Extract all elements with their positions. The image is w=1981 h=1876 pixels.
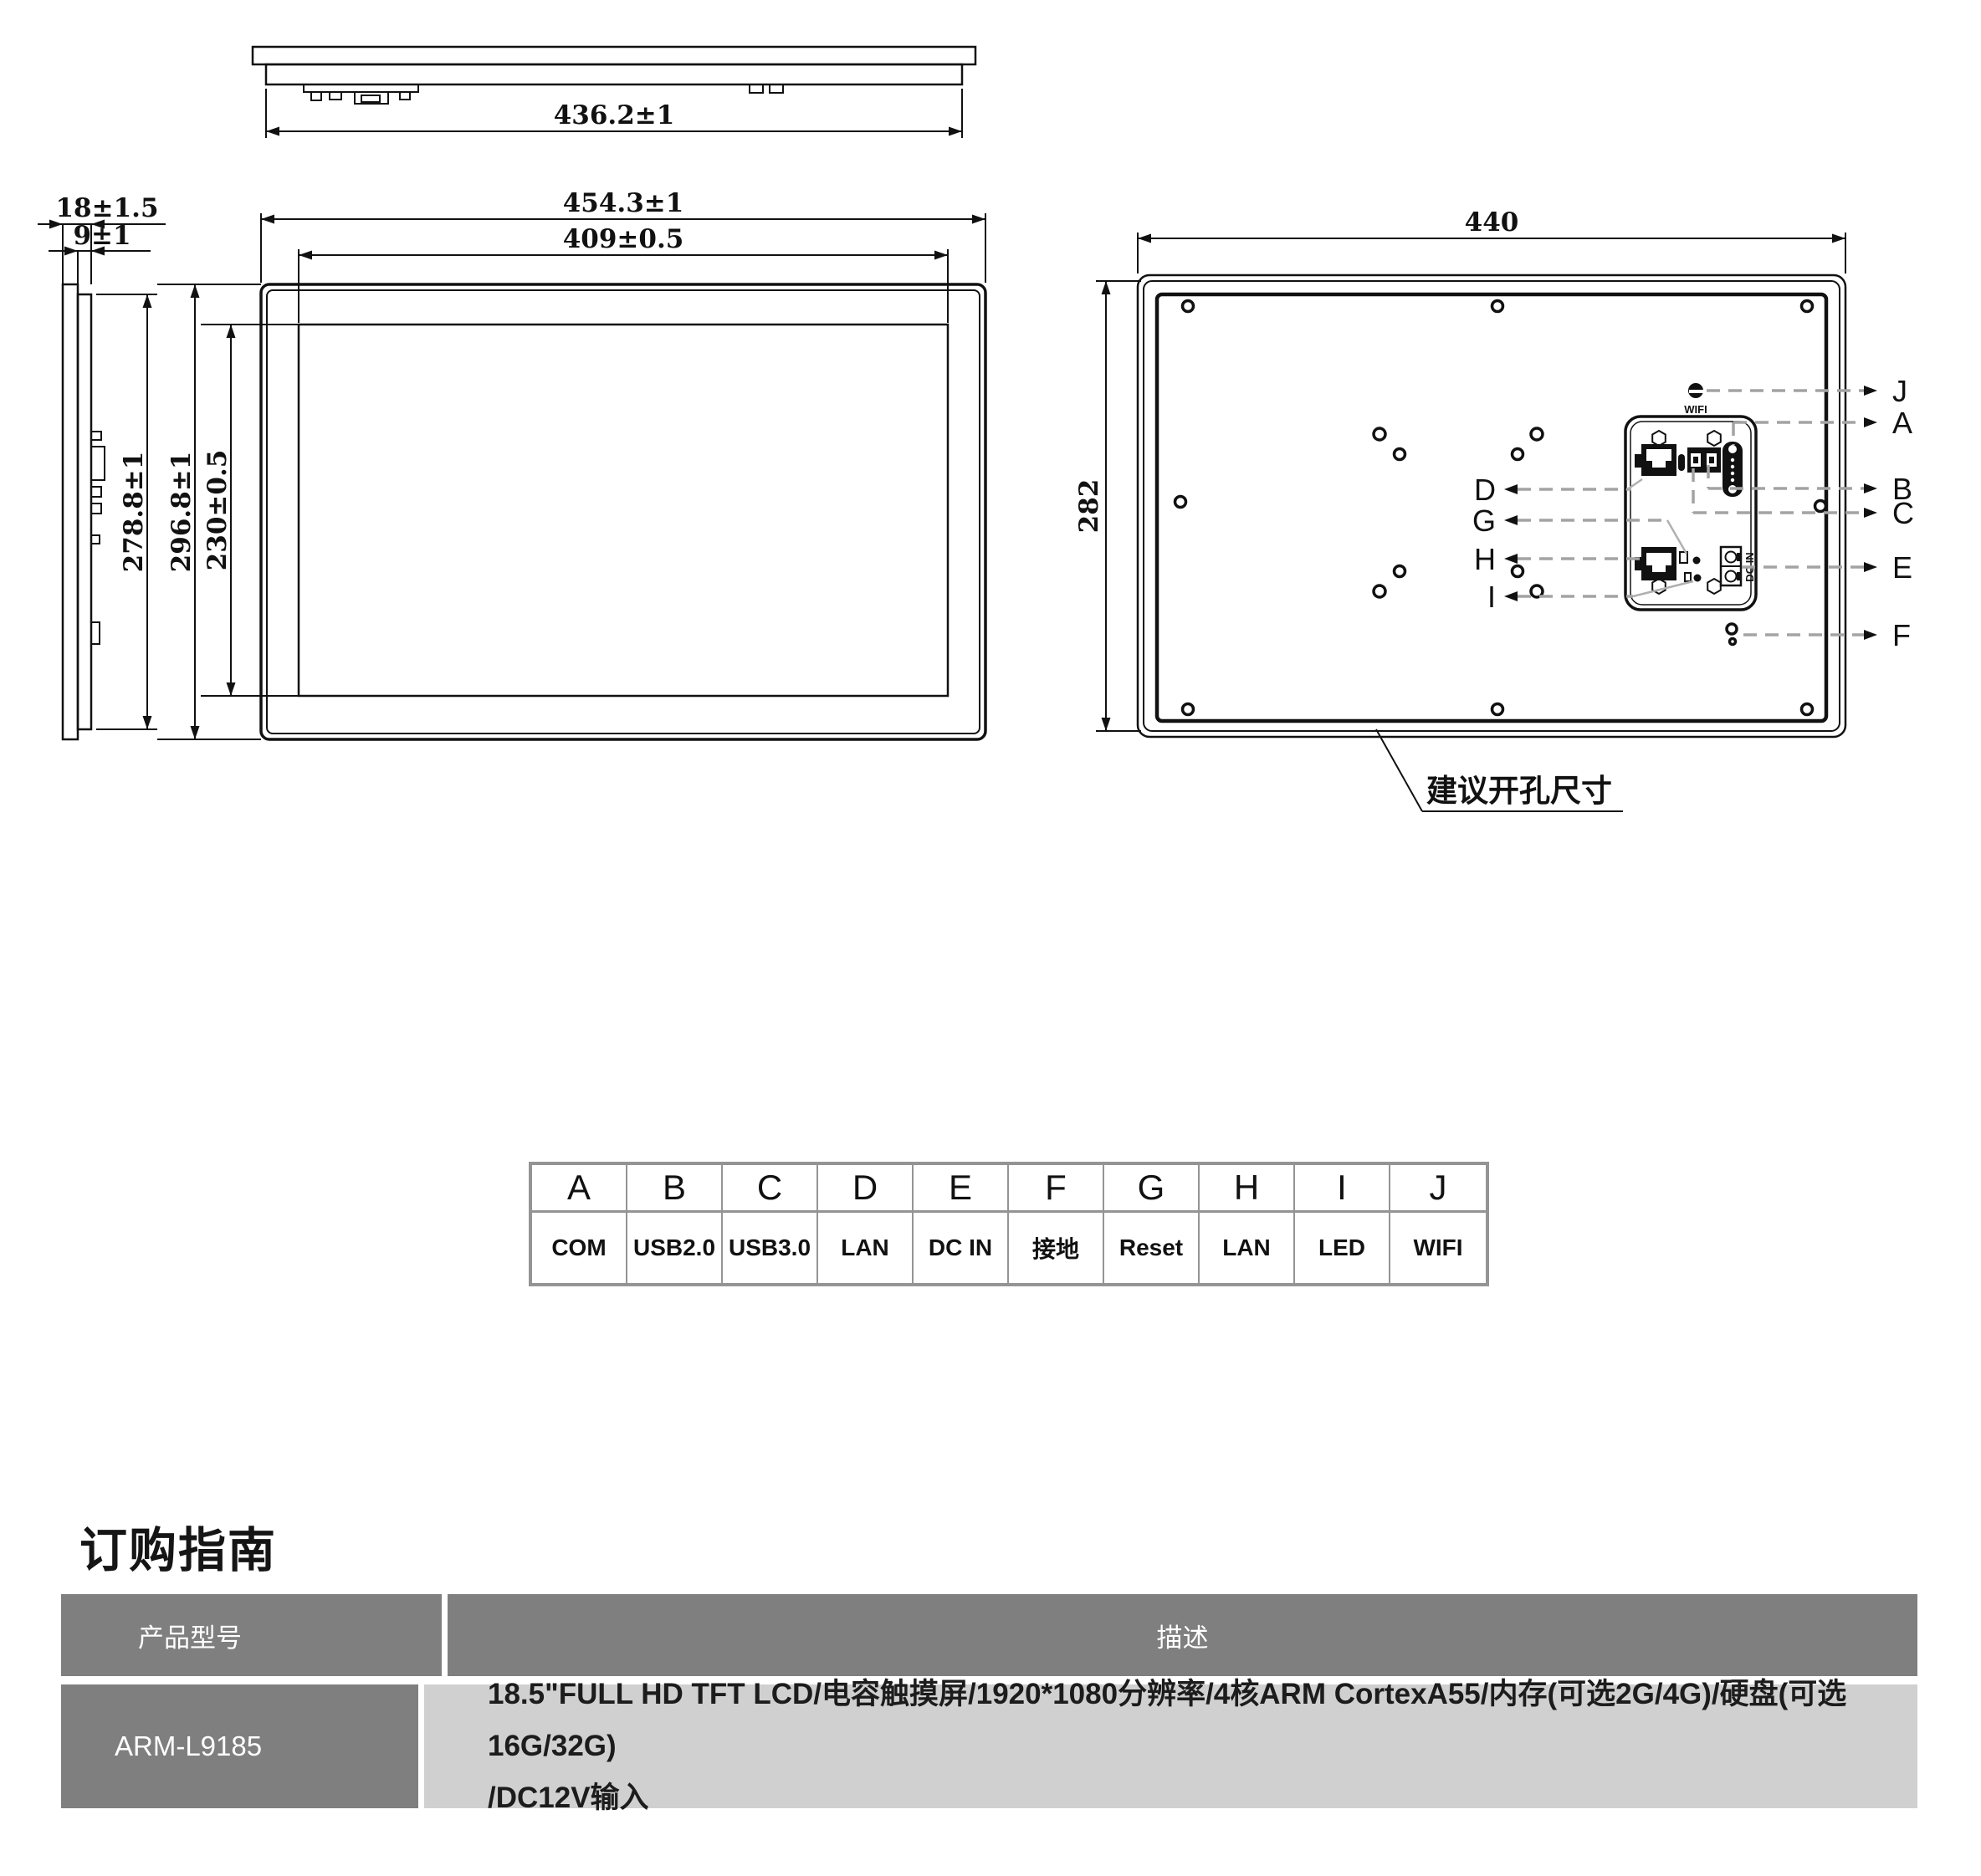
port-letter: E: [914, 1165, 1009, 1213]
port-value: LAN: [818, 1213, 914, 1283]
leader-label-H: H: [1474, 542, 1496, 576]
ground-hole: [1727, 624, 1737, 634]
lan-port-top: [1635, 444, 1676, 476]
dim-front-display-width: 409±0.5: [563, 224, 684, 254]
product-model: ARM-L9185: [61, 1684, 418, 1808]
dim-rear-width: 440: [1465, 207, 1519, 238]
port-value: USB2.0: [627, 1213, 723, 1283]
port-legend-table: A B C D E F G H I J COM USB2.0 USB3.0 LA…: [529, 1162, 1489, 1286]
dim-front-outer-width: 454.3±1: [563, 188, 684, 218]
leader-label-F: F: [1892, 618, 1911, 652]
rear-view: WIFI: [1074, 207, 1914, 811]
ordering-guide-title: 订购指南: [79, 1512, 277, 1581]
datasheet-page: { "drawing": { "top_view": { "dim_width"…: [0, 0, 1981, 1876]
top-view: 436.2±1: [253, 47, 975, 138]
port-letter: D: [818, 1165, 914, 1213]
ordering-col-model-header: 产品型号: [61, 1594, 442, 1676]
dim-front-display-height: 230±0.5: [202, 450, 233, 571]
port-value: DC IN: [914, 1213, 1009, 1283]
dim-rear-height: 282: [1074, 479, 1104, 534]
ground-hole-small: [1730, 639, 1736, 645]
port-value: COM: [532, 1213, 627, 1283]
port-legend-header-row: A B C D E F G H I J: [532, 1165, 1486, 1213]
port-letter: A: [532, 1165, 627, 1213]
leader-label-G: G: [1472, 504, 1496, 538]
perimeter-screw-holes: [1175, 301, 1826, 715]
cutout-note-text: 建议开孔尺寸: [1426, 774, 1612, 808]
port-legend-value-row: COM USB2.0 USB3.0 LAN DC IN 接地 Reset LAN…: [532, 1213, 1486, 1283]
port-value: WIFI: [1390, 1213, 1486, 1283]
port-value: 接地: [1009, 1213, 1104, 1283]
leader-label-I: I: [1487, 580, 1496, 614]
port-value: LAN: [1200, 1213, 1295, 1283]
dim-front-outer-height: 296.8±1: [166, 452, 197, 573]
port-letter: C: [723, 1165, 818, 1213]
dim-side-depth-body: 9±1: [73, 221, 131, 251]
port-letter: I: [1295, 1165, 1390, 1213]
product-description: 18.5"FULL HD TFT LCD/电容触摸屏/1920*1080分辨率/…: [424, 1684, 1917, 1808]
leader-label-C: C: [1892, 496, 1914, 530]
wifi-antenna-mount: WIFI: [1684, 383, 1707, 416]
connector-panel: DC IN: [1625, 417, 1756, 610]
leader-label-J: J: [1892, 374, 1907, 408]
technical-drawing: 436.2±1 18±1.5 9±1 278.8±1: [0, 0, 1981, 878]
port-letter: G: [1104, 1165, 1200, 1213]
leader-label-E: E: [1892, 550, 1912, 585]
cutout-callout: 建议开孔尺寸: [1376, 729, 1623, 811]
ordering-col-desc-header: 描述: [448, 1594, 1917, 1676]
wifi-label: WIFI: [1684, 403, 1707, 416]
port-value: USB3.0: [723, 1213, 818, 1283]
front-view: 454.3±1 409±0.5 296.8±1 230±0.5: [157, 188, 985, 739]
port-letter: B: [627, 1165, 723, 1213]
lan-port-bottom: [1635, 547, 1676, 580]
leader-label-A: A: [1892, 406, 1912, 440]
port-value: Reset: [1104, 1213, 1200, 1283]
port-letter: H: [1200, 1165, 1295, 1213]
side-view: 18±1.5 9±1 278.8±1: [38, 193, 166, 739]
port-value: LED: [1295, 1213, 1390, 1283]
dim-side-body-height: 278.8±1: [119, 452, 149, 573]
port-letter: F: [1009, 1165, 1104, 1213]
led-indicator: [1685, 573, 1691, 581]
product-description-line1: 18.5"FULL HD TFT LCD/电容触摸屏/1920*1080分辨率/…: [488, 1669, 1884, 1772]
dim-topview-width: 436.2±1: [554, 100, 675, 130]
port-letter: J: [1390, 1165, 1486, 1213]
dim-side-depth-total: 18±1.5: [55, 193, 158, 223]
leader-label-D: D: [1474, 473, 1496, 507]
ordering-table-data-row: ARM-L9185 18.5"FULL HD TFT LCD/电容触摸屏/192…: [61, 1684, 1917, 1808]
ordering-table-header-row: 产品型号 描述: [61, 1594, 1917, 1676]
vesa-mount-holes: [1374, 428, 1543, 597]
product-description-line2: /DC12V输入: [488, 1772, 649, 1824]
